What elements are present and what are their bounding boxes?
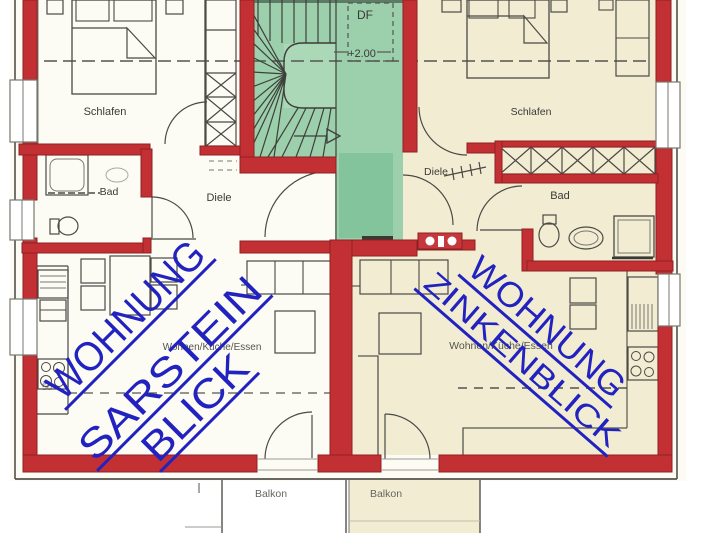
svg-text:Bad: Bad <box>550 190 570 202</box>
svg-text:Balkon: Balkon <box>255 488 287 500</box>
svg-text:Schlafen: Schlafen <box>84 106 127 118</box>
svg-text:Bad: Bad <box>100 186 119 198</box>
svg-text:Schlafen: Schlafen <box>511 106 552 118</box>
svg-text:DF: DF <box>357 8 373 22</box>
svg-text:Balkon: Balkon <box>370 488 402 500</box>
svg-text:Diele: Diele <box>206 192 231 204</box>
svg-text:+2.00: +2.00 <box>348 48 376 60</box>
